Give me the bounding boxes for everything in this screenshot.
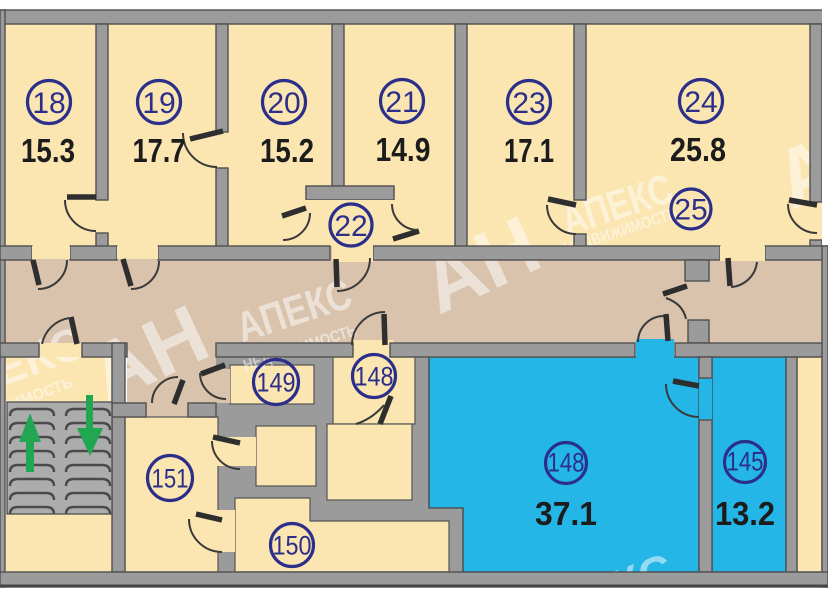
svg-text:25.8: 25.8 xyxy=(670,131,726,168)
svg-text:151: 151 xyxy=(152,464,189,494)
svg-text:23: 23 xyxy=(512,87,545,120)
svg-text:17.7: 17.7 xyxy=(133,132,186,169)
svg-text:25: 25 xyxy=(674,194,707,227)
svg-text:15.3: 15.3 xyxy=(21,132,75,169)
svg-text:148: 148 xyxy=(548,448,585,478)
svg-text:17.1: 17.1 xyxy=(504,132,554,169)
svg-text:13.2: 13.2 xyxy=(715,495,775,532)
svg-text:14.9: 14.9 xyxy=(376,131,431,168)
svg-text:15.2: 15.2 xyxy=(260,132,314,169)
svg-text:21: 21 xyxy=(385,86,418,119)
svg-text:149: 149 xyxy=(257,368,296,398)
svg-text:37.1: 37.1 xyxy=(535,495,597,532)
svg-text:148: 148 xyxy=(355,362,394,392)
svg-text:22: 22 xyxy=(334,210,367,243)
svg-text:20: 20 xyxy=(267,87,300,120)
svg-text:18: 18 xyxy=(32,87,65,120)
svg-text:24: 24 xyxy=(684,86,717,119)
svg-text:150: 150 xyxy=(273,531,312,561)
svg-text:145: 145 xyxy=(727,447,764,477)
svg-text:19: 19 xyxy=(142,87,175,120)
